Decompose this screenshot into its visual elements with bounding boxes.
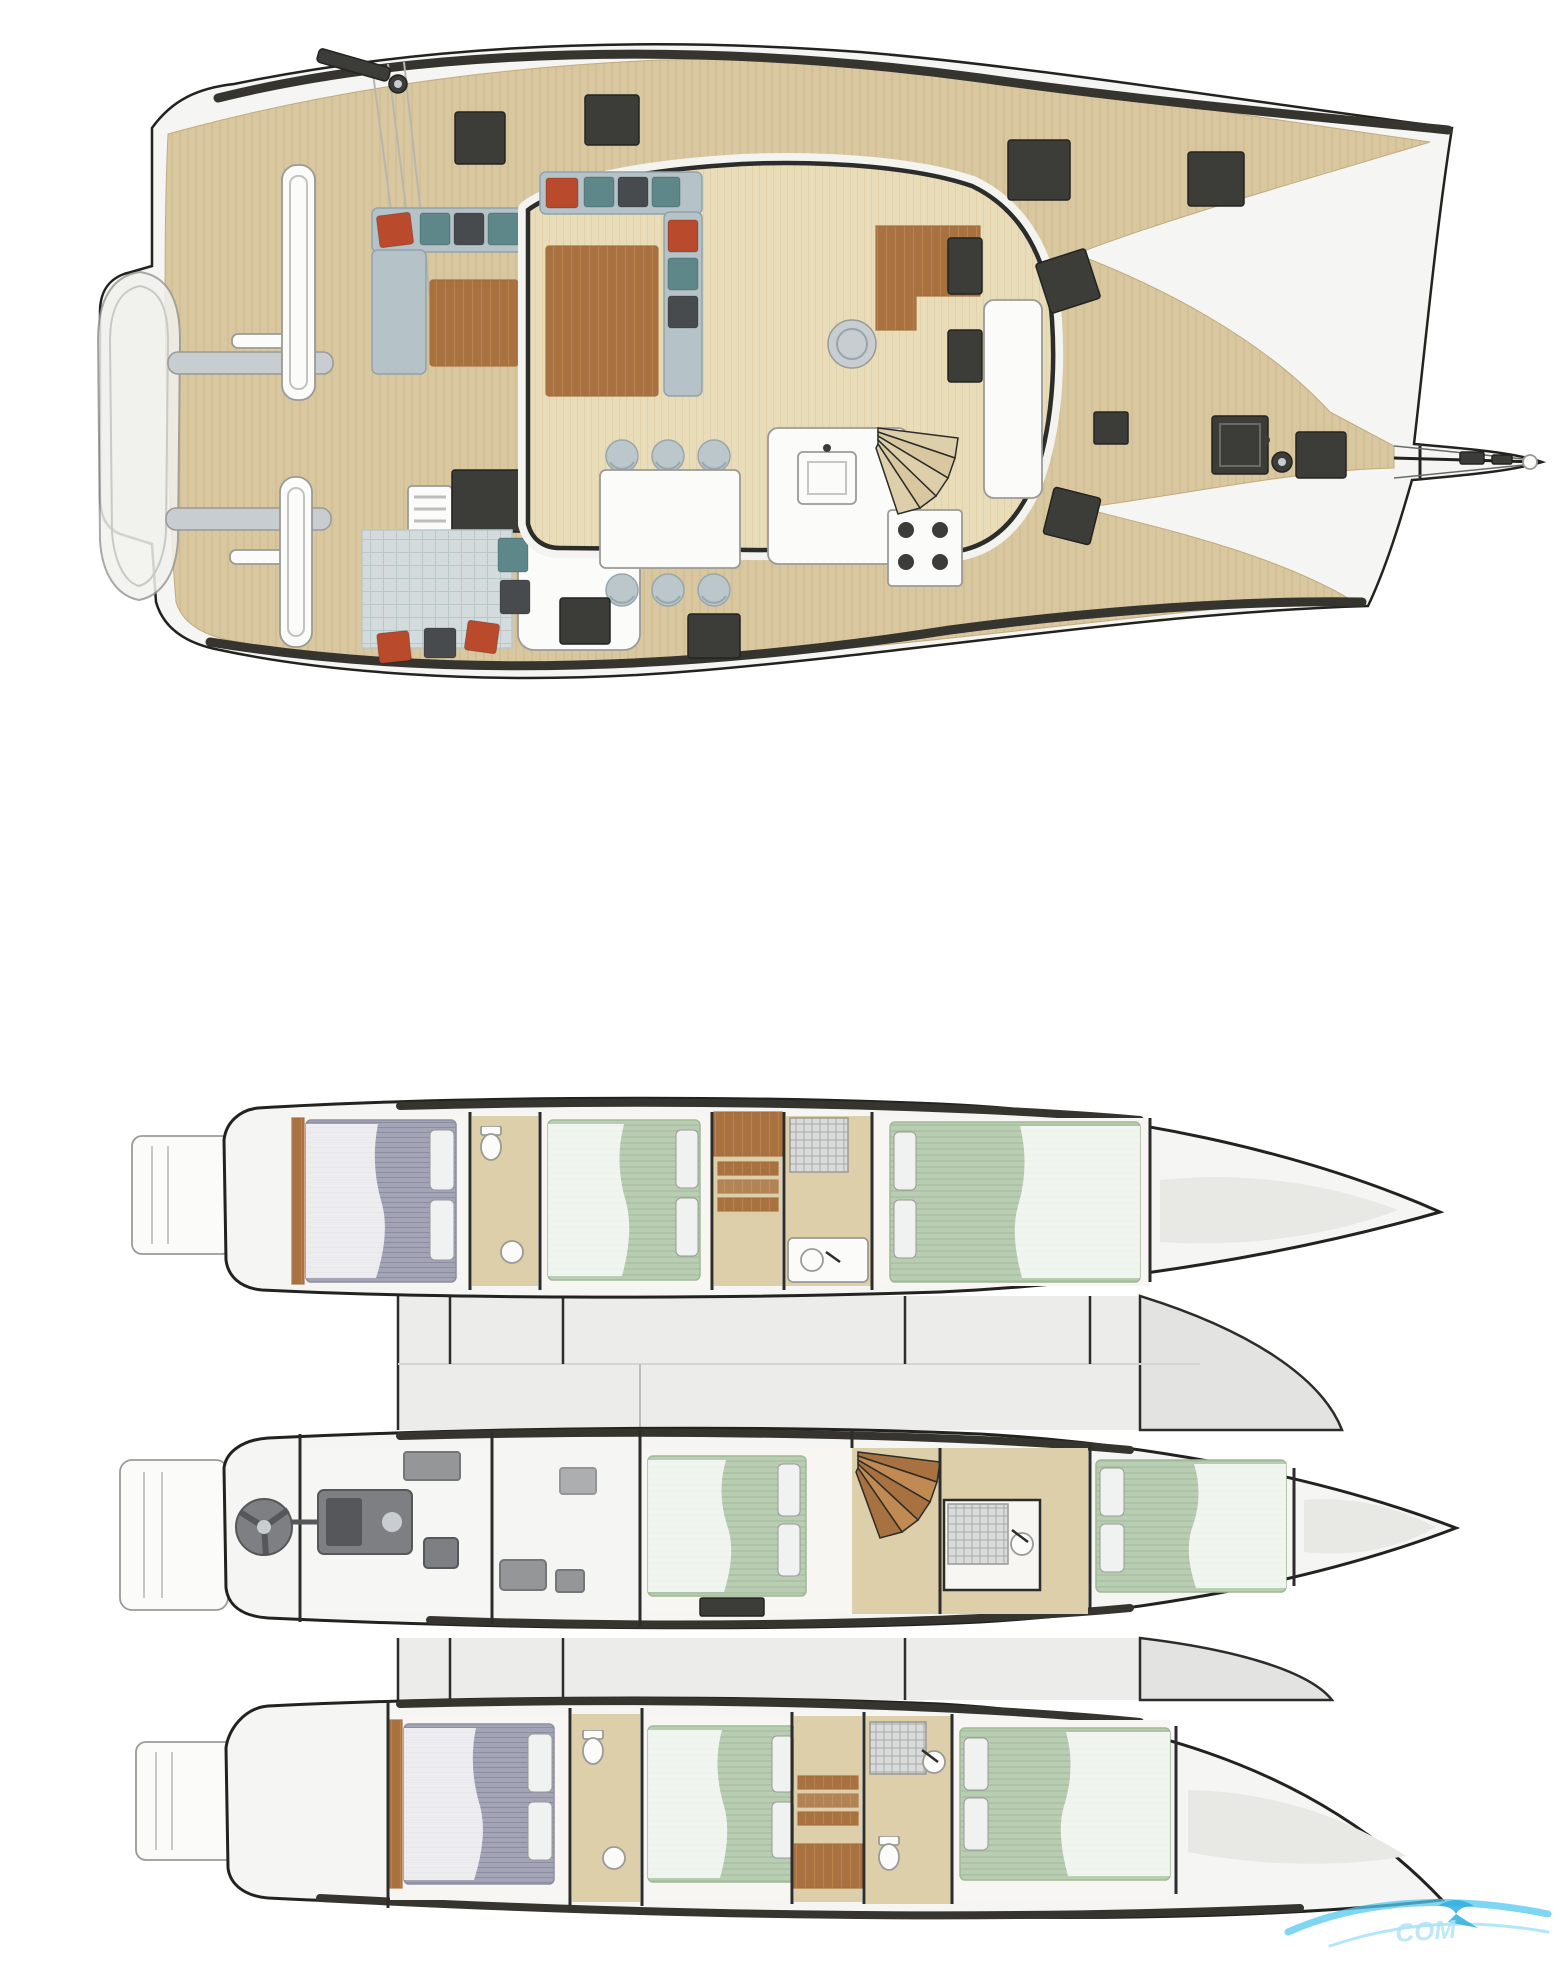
- shower: [870, 1722, 926, 1774]
- owners-cabin: [642, 1448, 852, 1616]
- shower-room: [786, 1116, 872, 1286]
- hatch: [688, 614, 740, 658]
- cushion: [488, 213, 520, 245]
- watermark-text: COM: [1394, 1914, 1458, 1948]
- nav-instrument-panel: [948, 238, 982, 294]
- steering-gear: [236, 1499, 292, 1555]
- wing-deck-lower: [398, 1638, 1332, 1700]
- cushion: [424, 628, 456, 658]
- closet: [714, 1112, 782, 1156]
- cushion: [498, 538, 528, 572]
- vanity: [788, 1238, 868, 1282]
- toilet: [583, 1730, 603, 1764]
- pillow: [894, 1200, 916, 1258]
- head-compartment: [572, 1714, 640, 1902]
- pillow: [1100, 1524, 1124, 1572]
- galley-sink: [798, 452, 856, 504]
- anchor-shank: [1492, 455, 1512, 464]
- aft-double-cabin: [390, 1714, 568, 1900]
- saloon: [528, 163, 1053, 606]
- pillow: [778, 1464, 800, 1516]
- side-step-rail: [280, 477, 312, 647]
- saloon-sofa-group: [540, 172, 702, 396]
- cushion: [668, 258, 698, 290]
- burner: [898, 522, 914, 538]
- mid-double-cabin: [644, 1716, 796, 1902]
- side-step-rail: [282, 165, 315, 400]
- washbasin: [501, 1241, 523, 1263]
- cushion: [584, 177, 614, 207]
- closet: [794, 1844, 862, 1888]
- cushion: [454, 213, 484, 245]
- galley-stove: [888, 510, 962, 586]
- saloon-coffee-table: [546, 246, 658, 396]
- main-deck-plan: [98, 44, 1542, 678]
- hatch: [1188, 152, 1244, 206]
- equipment: [560, 1468, 596, 1494]
- cushion: [652, 177, 680, 207]
- round-basin: [828, 320, 876, 368]
- toilet: [879, 1836, 899, 1870]
- pillow: [1100, 1468, 1124, 1516]
- cushion: [546, 178, 578, 208]
- cushion: [377, 630, 412, 663]
- yacht-layout-page: COM: [0, 0, 1560, 1972]
- shower: [948, 1504, 1008, 1564]
- pillow: [676, 1198, 698, 1256]
- wing-deck-upper: [398, 1296, 1342, 1430]
- washbasin: [603, 1847, 625, 1869]
- pillow: [778, 1524, 800, 1576]
- wing-leading-edge: [1140, 1638, 1332, 1700]
- hatch: [1008, 140, 1070, 200]
- shower-room: [866, 1716, 952, 1904]
- cushion: [420, 213, 450, 245]
- hatch: [1094, 412, 1128, 444]
- burner: [898, 554, 914, 570]
- center-hull: [120, 1428, 1456, 1628]
- stern-platform: [136, 1742, 236, 1860]
- cushion: [464, 620, 500, 654]
- hatch: [585, 95, 639, 145]
- equipment: [556, 1570, 584, 1592]
- cushion: [668, 220, 698, 252]
- stern-platform: [120, 1460, 228, 1610]
- burner: [932, 522, 948, 538]
- dining-chair: [698, 574, 730, 606]
- hull-staircase: [852, 1448, 942, 1614]
- dining-chair: [652, 574, 684, 606]
- head-compartment: [472, 1116, 538, 1286]
- pillow: [676, 1130, 698, 1188]
- pillow: [964, 1798, 988, 1850]
- port-hull: [132, 1098, 1440, 1297]
- hatch: [1043, 487, 1101, 545]
- aft-double-cabin: [292, 1116, 468, 1286]
- pillow: [528, 1734, 552, 1792]
- cushion: [618, 177, 648, 207]
- dining-chair: [698, 440, 730, 472]
- equipment: [404, 1452, 460, 1480]
- fore-double-cabin: [874, 1118, 1150, 1286]
- starboard-hull: [136, 1698, 1442, 1917]
- fore-double-cabin: [954, 1720, 1170, 1900]
- deck-fitting: [1248, 436, 1256, 444]
- fore-cabin: [1096, 1460, 1286, 1592]
- bow-roller: [1523, 455, 1537, 469]
- deck-fitting: [1262, 436, 1270, 444]
- shower: [790, 1118, 848, 1172]
- pillow: [430, 1200, 454, 1260]
- yacht-layout-canvas: COM: [0, 0, 1560, 1972]
- galley-counter: [984, 300, 1042, 498]
- pillow: [894, 1132, 916, 1190]
- burner: [932, 554, 948, 570]
- dressing-steps: [794, 1716, 862, 1902]
- pillow: [528, 1802, 552, 1860]
- dining-table: [600, 470, 740, 568]
- lower-deck-plan: [120, 1098, 1456, 1917]
- mid-double-cabin: [542, 1116, 712, 1286]
- anchor-box: [1296, 432, 1346, 478]
- cushion: [376, 212, 414, 248]
- anchor-shank: [1460, 452, 1484, 464]
- engine-room: [292, 1448, 490, 1612]
- fridge: [948, 330, 982, 382]
- pillow: [430, 1130, 454, 1190]
- cockpit-table: [430, 280, 518, 366]
- dressing-steps: [714, 1112, 782, 1286]
- cushion: [500, 580, 530, 614]
- wardrobe: [292, 1118, 304, 1284]
- cockpit-sofa-arm: [372, 250, 426, 374]
- dining-chair: [606, 574, 638, 606]
- wardrobe: [390, 1720, 402, 1888]
- dining-chair: [652, 440, 684, 472]
- faucet: [823, 444, 831, 452]
- tv-dresser: [700, 1598, 764, 1616]
- hatch: [560, 598, 610, 644]
- toilet: [481, 1126, 501, 1160]
- hatch: [455, 112, 505, 164]
- cushion: [668, 296, 698, 328]
- bow-shading: [1304, 1499, 1436, 1553]
- washbasin: [801, 1249, 823, 1271]
- head-shower: [942, 1448, 1088, 1614]
- stern-platform: [132, 1136, 232, 1254]
- door-mat: [452, 470, 528, 532]
- pillow: [964, 1738, 988, 1790]
- dining-chair: [606, 440, 638, 472]
- dining-area: [600, 440, 740, 606]
- equipment: [500, 1560, 546, 1590]
- generator: [424, 1538, 458, 1568]
